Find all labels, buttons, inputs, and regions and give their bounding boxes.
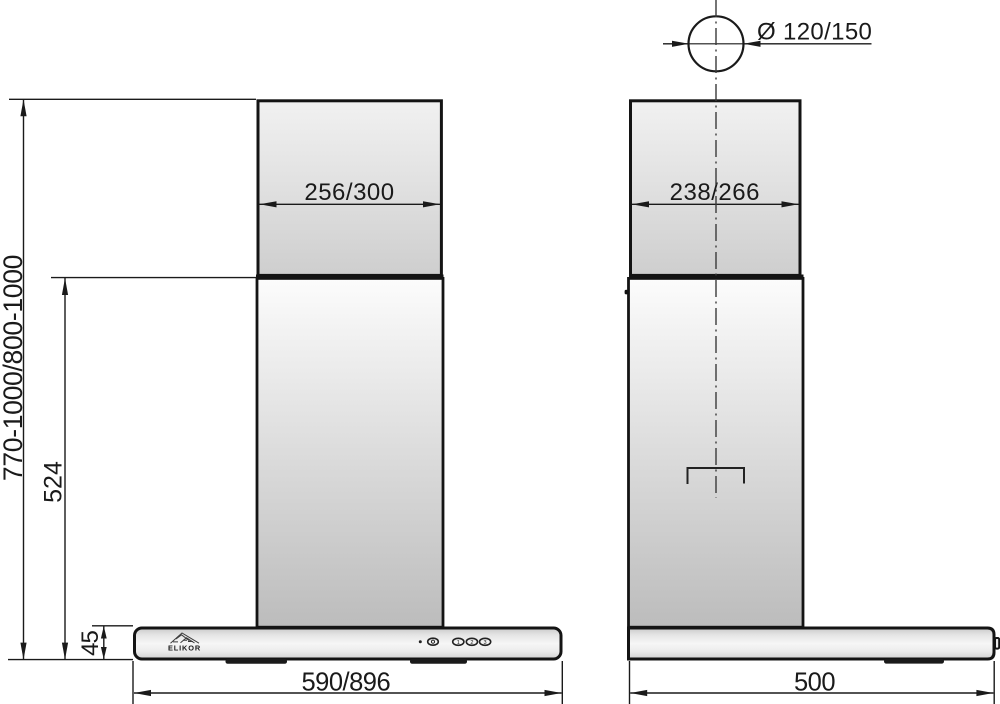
- svg-text:3: 3: [484, 640, 487, 646]
- svg-text:1: 1: [457, 640, 460, 646]
- svg-text:45: 45: [77, 631, 104, 656]
- svg-text:590/896: 590/896: [301, 668, 390, 696]
- svg-text:Ø 120/150: Ø 120/150: [757, 19, 872, 46]
- svg-text:500: 500: [794, 669, 835, 697]
- svg-text:770-1000/800-1000: 770-1000/800-1000: [0, 255, 28, 481]
- svg-text:238/266: 238/266: [670, 179, 760, 206]
- svg-text:ELIKOR: ELIKOR: [168, 643, 201, 652]
- svg-text:524: 524: [40, 461, 68, 503]
- svg-text:2: 2: [470, 640, 473, 646]
- svg-text:256/300: 256/300: [304, 179, 394, 206]
